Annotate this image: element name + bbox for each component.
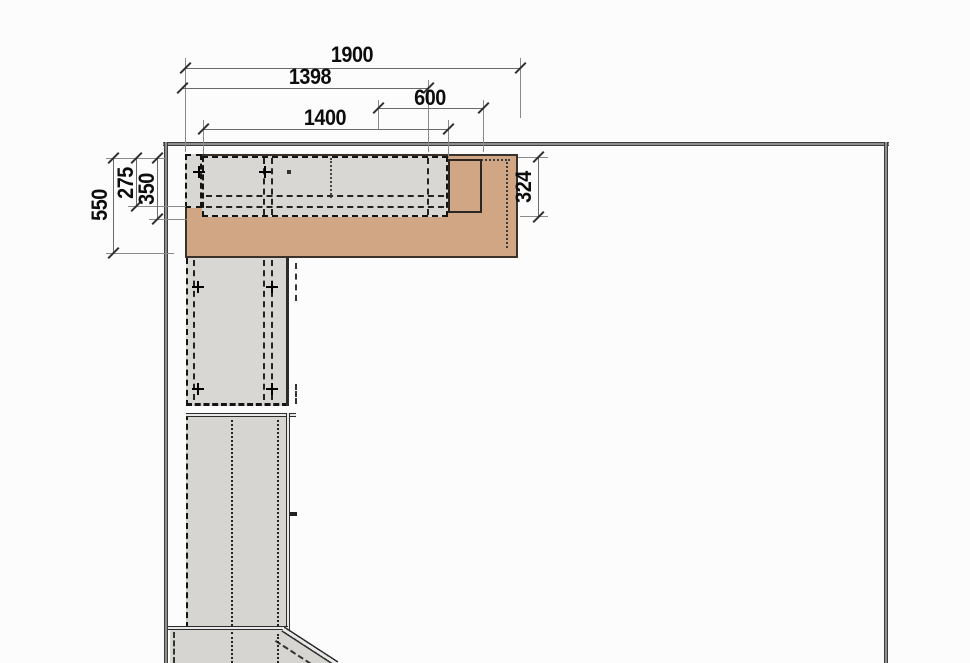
assembly-marker [193,166,205,178]
dimension-line-324 [538,157,539,217]
tall-cabinet [186,414,289,628]
cabinet-edge-dash [263,260,265,400]
dim-label-600: 600 [385,87,475,109]
cabinet-divider-dash [330,158,332,198]
dim-label-324: 324 [512,160,536,214]
cabinet-top-edge [186,413,296,417]
cabinet-side-dash [295,263,297,301]
countertop-edge-dots [506,162,508,248]
dim-label-1900: 1900 [307,44,397,66]
cabinet-right-edge [286,413,290,630]
door-split-dots [277,634,279,663]
extension-line [518,157,548,158]
assembly-marker [259,166,271,178]
wall-right [884,142,888,663]
door-split-dots [231,632,233,663]
cabinet-edge-dash [173,632,175,663]
cabinet-bottom-edge [168,626,288,630]
dim-label-350: 350 [135,162,159,216]
dim-label-1400: 1400 [280,107,370,129]
cabinet-front-dash-line [206,206,444,208]
wall-left [164,142,168,663]
extension-line [106,253,174,254]
floor-plan-canvas: 1900 1398 600 1400 550 275 350 324 [0,0,970,663]
assembly-marker [266,383,278,395]
marker-dot [287,170,291,174]
door-split-dots [277,420,279,626]
assembly-marker [266,281,278,293]
cabinet-side-panel [286,258,289,406]
cabinet-side-dash [295,384,297,404]
door-handle [290,512,297,516]
assembly-marker [192,383,204,395]
door-split-dots [231,420,233,626]
wall-cabinet-left-strip [185,154,202,208]
extractor-hood-outline [448,159,482,213]
assembly-marker [192,281,204,293]
cabinet-divider-dash [427,158,429,215]
wall-top [163,142,889,146]
cabinet-divider-dash [271,158,273,215]
extension-line [185,58,186,152]
extension-line [203,120,204,154]
dim-label-550: 550 [88,178,112,232]
cabinet-front-dash-line [206,195,444,197]
extension-line [520,216,548,217]
dim-label-1398: 1398 [265,66,355,88]
